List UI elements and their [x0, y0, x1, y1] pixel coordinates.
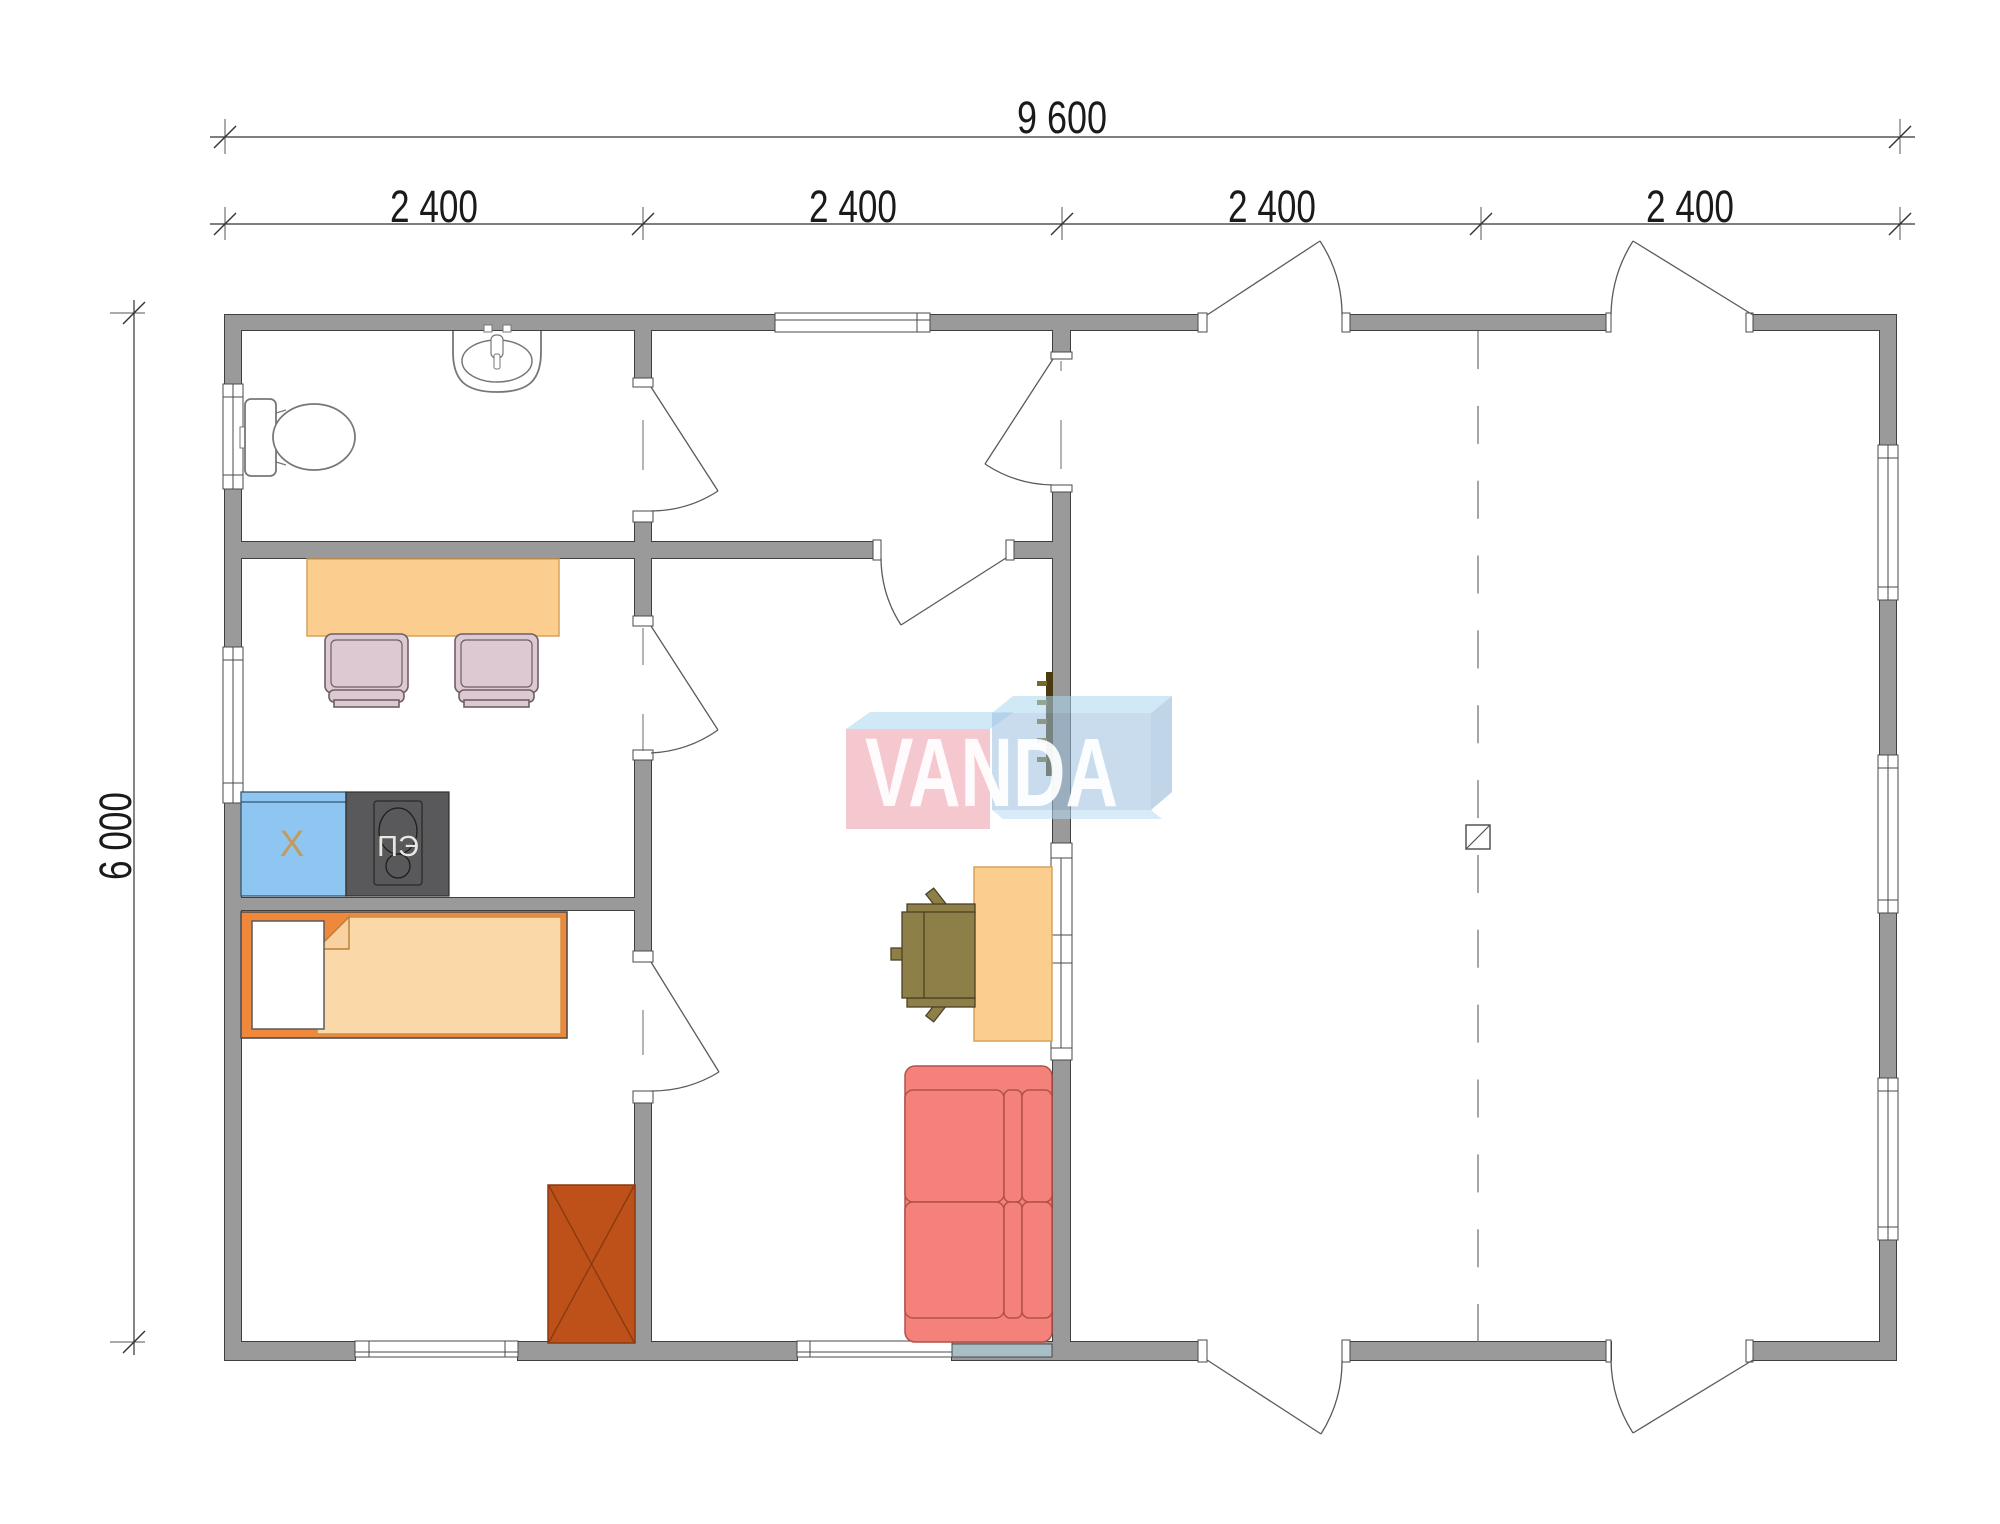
- svg-text:ПЭ: ПЭ: [377, 831, 419, 863]
- svg-text:2 400: 2 400: [1228, 181, 1316, 232]
- svg-text:2 400: 2 400: [390, 181, 478, 232]
- svg-text:X: X: [280, 823, 305, 864]
- svg-text:2 400: 2 400: [809, 181, 897, 232]
- svg-text:2 400: 2 400: [1646, 181, 1734, 232]
- svg-text:9 600: 9 600: [1017, 92, 1107, 143]
- svg-text:VANDA: VANDA: [865, 718, 1118, 827]
- svg-text:6 000: 6 000: [90, 792, 141, 880]
